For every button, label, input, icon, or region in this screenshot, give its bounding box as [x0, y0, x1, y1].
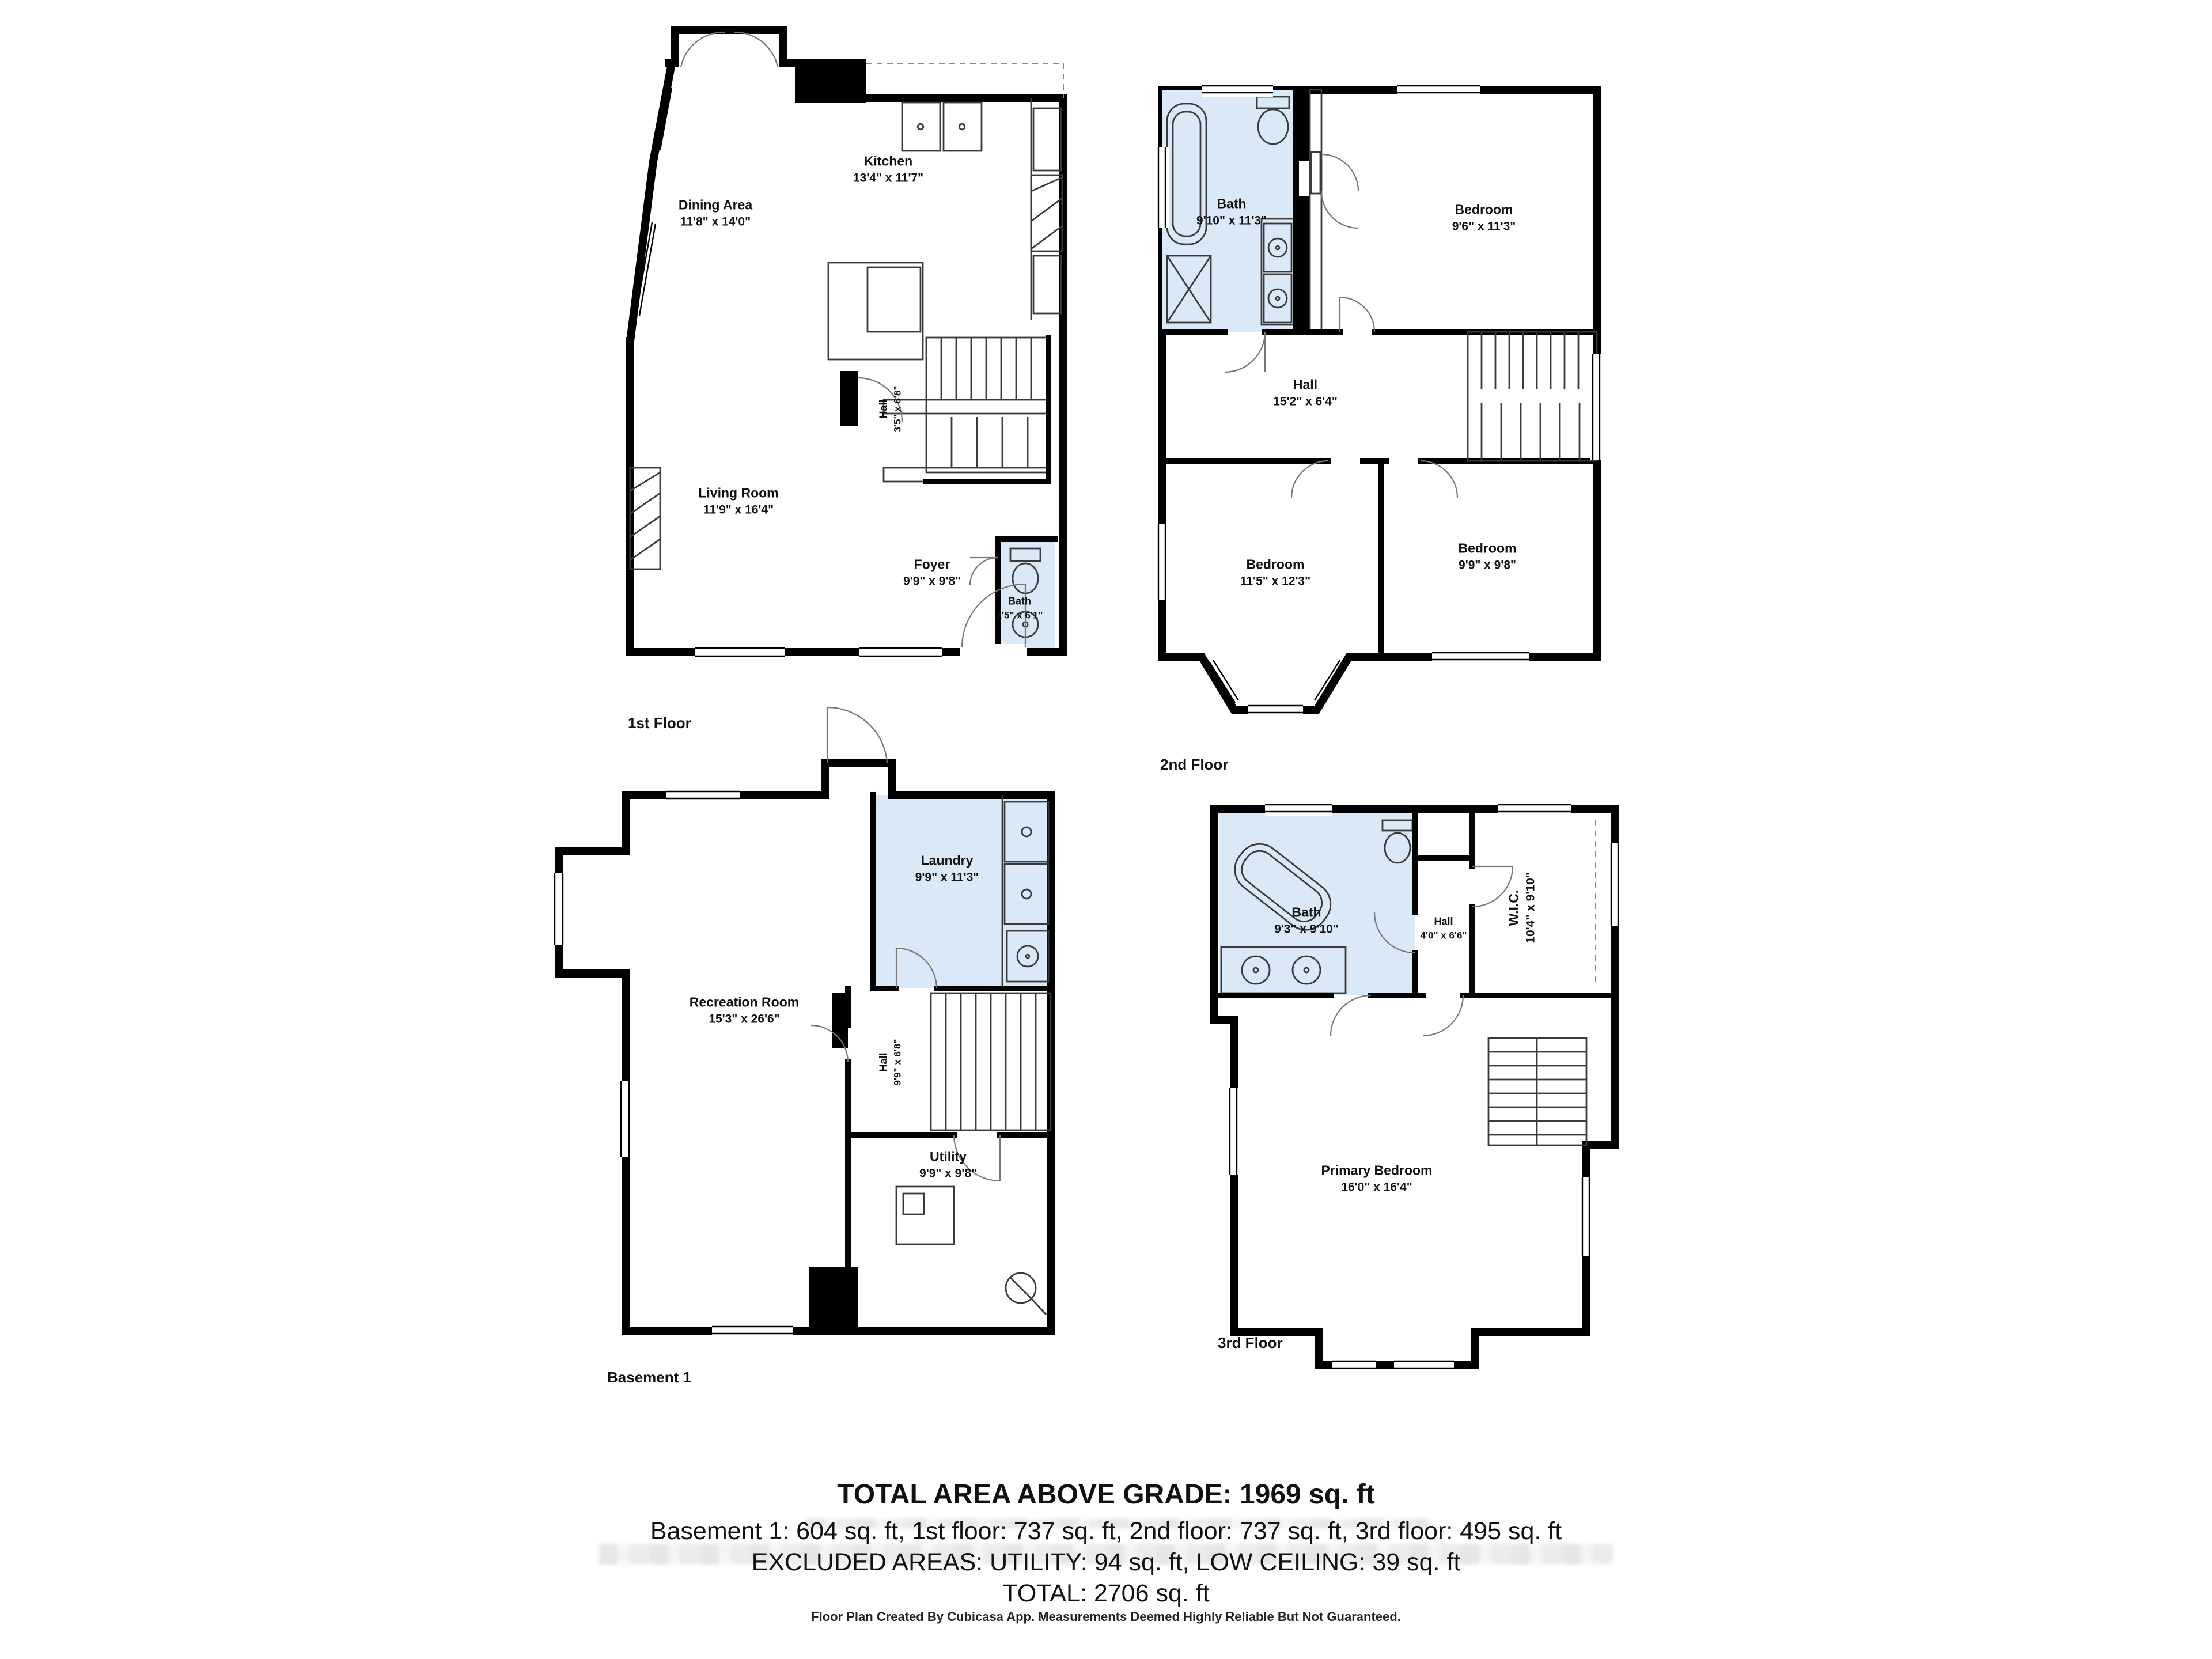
room-label-bath: Bath 9'3" x 9'10" [1274, 905, 1339, 938]
summary-excluded-areas: EXCLUDED AREAS: UTILITY: 94 sq. ft, LOW … [0, 1548, 2212, 1577]
room-name: Recreation Room [690, 995, 799, 1012]
closet [1310, 90, 1321, 332]
wall-stub [840, 371, 858, 426]
room-dims: 9'9" x 9'8" [903, 574, 961, 590]
stairs-icon [931, 993, 1051, 1130]
room-dims: 11'9" x 16'4" [698, 503, 778, 518]
room-label-bedroom-tr: Bedroom 9'6" x 11'3" [1452, 202, 1516, 235]
kitchen-island [828, 263, 923, 359]
door-arc [827, 707, 887, 763]
room-dims: 2'5" x 6'1" [997, 609, 1043, 622]
room-label-utility: Utility 9'9" x 9'8" [919, 1149, 977, 1182]
door-arc [1225, 332, 1265, 372]
room-label-hall: Hall 15'2" x 6'4" [1273, 377, 1338, 410]
room-dims: 15'3" x 26'6" [690, 1012, 799, 1028]
room-name: Laundry [915, 853, 979, 870]
room-name: Bath [997, 595, 1043, 608]
door-arc [970, 558, 998, 585]
room-name: Hall [877, 1039, 891, 1086]
room-dims: 16'0" x 16'4" [1321, 1180, 1432, 1196]
room-dims: 11'5" x 12'3" [1240, 574, 1310, 590]
room-name: Kitchen [853, 154, 923, 171]
stairs-icon [1488, 1038, 1586, 1145]
door-arc [1423, 995, 1463, 1036]
door-arc [1331, 995, 1371, 1036]
sump-pump-icon [1006, 1273, 1046, 1315]
furnace-icon [896, 1187, 954, 1244]
door-arc [1421, 461, 1457, 498]
floor-plan-basement: Laundry 9'9" x 11'3" Recreation Room 15'… [551, 691, 1063, 1371]
room-label-laundry: Laundry 9'9" x 11'3" [915, 853, 979, 886]
room-label-foyer: Foyer 9'9" x 9'8" [903, 557, 961, 590]
floor-caption-third: 3rd Floor [1218, 1334, 1283, 1351]
room-dims: 15'2" x 6'4" [1273, 395, 1338, 410]
floor-plan-first: Kitchen 13'4" x 11'7" Dining Area 11'8" … [614, 12, 1104, 674]
room-label-hall: Hall 9'9" x 6'8" [877, 1039, 903, 1086]
summary-total: TOTAL: 2706 sq. ft [0, 1580, 2212, 1608]
room-label-wic: W.I.C. 10'4" x 9'10" [1506, 872, 1539, 943]
room-dims: 4'0" x 6'6" [1421, 929, 1467, 942]
room-name: Bath [1274, 905, 1339, 922]
front-door-gap [960, 644, 1027, 660]
floor-caption-second: 2nd Floor [1160, 756, 1228, 773]
room-label-bedroom-br: Bedroom 9'9" x 9'8" [1459, 541, 1517, 574]
room-name: Foyer [903, 557, 961, 574]
second-floor-drawing [1156, 81, 1616, 720]
chimney-block [795, 59, 866, 103]
room-dims: 3'5" x 6'8" [891, 386, 904, 433]
first-floor-drawing [614, 12, 1104, 674]
room-name: Hall [1273, 377, 1338, 395]
kitchen-appliances-icon [902, 98, 1062, 320]
summary-breakdown: Basement 1: 604 sq. ft, 1st floor: 737 s… [0, 1517, 2212, 1546]
room-name: Utility [919, 1149, 977, 1166]
summary-total-above-grade: TOTAL AREA ABOVE GRADE: 1969 sq. ft [0, 1479, 2212, 1512]
room-dims: 9'3" x 9'10" [1274, 922, 1339, 938]
room-name: Hall [1421, 915, 1467, 929]
room-dims: 11'8" x 14'0" [679, 215, 752, 230]
room-dims: 13'4" x 11'7" [853, 171, 923, 187]
room-name: Bedroom [1459, 541, 1517, 558]
room-label-dining: Dining Area 11'8" x 14'0" [679, 198, 752, 230]
room-label-hall: Hall 3'5" x 6'8" [877, 386, 903, 433]
room-name: Dining Area [679, 198, 752, 215]
room-dims: 10'4" x 9'10" [1524, 872, 1539, 943]
room-dims: 9'6" x 11'3" [1452, 219, 1516, 235]
room-dims: 9'10" x 11'3" [1196, 214, 1267, 229]
basement-drawing [551, 691, 1063, 1371]
door-arc [681, 32, 778, 67]
room-label-bath: Bath 9'10" x 11'3" [1196, 196, 1267, 229]
room-label-kitchen: Kitchen 13'4" x 11'7" [853, 154, 923, 187]
laundry-wet-area [873, 795, 1051, 988]
room-name: Living Room [698, 486, 778, 503]
roof-overhang-dash [866, 63, 1063, 98]
third-floor-drawing [1210, 797, 1624, 1373]
bath-wet-area [1219, 813, 1415, 995]
room-label-bedroom-bl: Bedroom 11'5" x 12'3" [1240, 557, 1310, 590]
room-label-bath: Bath 2'5" x 6'1" [997, 595, 1043, 621]
disclaimer-text: Floor Plan Created By Cubicasa App. Meas… [0, 1611, 2212, 1624]
fireplace-icon [630, 468, 660, 569]
floor-plan-second: Bath 9'10" x 11'3" Bedroom 9'6" x 11'3" … [1156, 81, 1616, 720]
room-name: Bath [1196, 196, 1267, 214]
window [859, 644, 942, 660]
window [552, 788, 793, 1338]
wall-chunk [809, 1267, 858, 1331]
floor-plan-third: Bath 9'3" x 9'10" Hall 4'0" x 6'6" W.I.C… [1210, 797, 1624, 1373]
room-label-recreation: Recreation Room 15'3" x 26'6" [690, 995, 799, 1028]
floor-caption-basement: Basement 1 [607, 1369, 691, 1386]
room-dims: 9'9" x 6'8" [891, 1039, 904, 1086]
floor-plan-page: Kitchen 13'4" x 11'7" Dining Area 11'8" … [0, 0, 2212, 1659]
stairs-icon [1468, 332, 1597, 461]
room-name: Primary Bedroom [1321, 1163, 1432, 1180]
door-arc [1340, 297, 1374, 332]
room-name: Bedroom [1240, 557, 1310, 574]
room-name: Bedroom [1452, 202, 1516, 219]
window [695, 644, 785, 660]
door-arc [1321, 154, 1358, 228]
room-label-living: Living Room 11'9" x 16'4" [698, 486, 778, 518]
room-dims: 9'9" x 9'8" [1459, 558, 1517, 574]
room-label-hall: Hall 4'0" x 6'6" [1421, 915, 1467, 941]
room-name: Hall [877, 386, 891, 433]
room-dims: 9'9" x 9'8" [919, 1166, 977, 1182]
door-arc [1291, 461, 1328, 498]
room-dims: 9'9" x 11'3" [915, 870, 979, 886]
room-label-primary: Primary Bedroom 16'0" x 16'4" [1321, 1163, 1432, 1196]
room-name: W.I.C. [1506, 872, 1524, 943]
